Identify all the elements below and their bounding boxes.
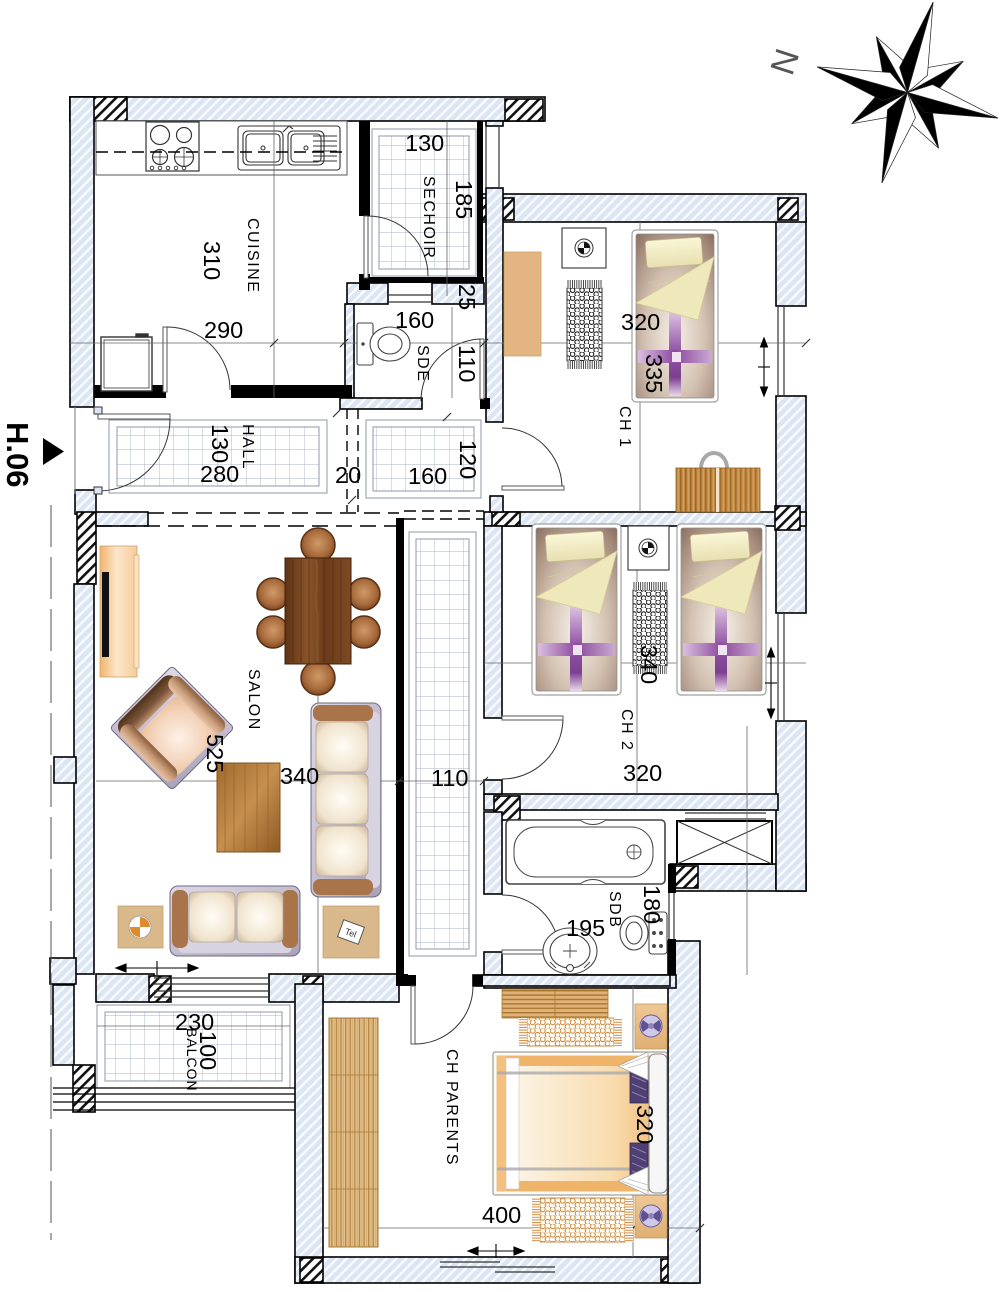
svg-text:160: 160 bbox=[395, 307, 434, 333]
svg-text:400: 400 bbox=[482, 1202, 521, 1228]
svg-text:340: 340 bbox=[280, 763, 319, 789]
svg-text:340: 340 bbox=[636, 645, 662, 684]
svg-text:130: 130 bbox=[405, 130, 444, 156]
svg-text:CH 1: CH 1 bbox=[616, 406, 633, 448]
svg-text:CH 2: CH 2 bbox=[618, 709, 635, 751]
svg-text:HALL: HALL bbox=[239, 424, 256, 470]
svg-text:320: 320 bbox=[623, 760, 662, 786]
svg-text:SDE: SDE bbox=[414, 345, 431, 382]
svg-text:195: 195 bbox=[566, 915, 605, 941]
svg-text:25: 25 bbox=[454, 284, 480, 310]
svg-text:CH PARENTS: CH PARENTS bbox=[443, 1049, 460, 1166]
svg-text:SDB: SDB bbox=[606, 891, 623, 928]
svg-text:320: 320 bbox=[621, 309, 660, 335]
svg-text:185: 185 bbox=[451, 180, 477, 219]
svg-text:290: 290 bbox=[204, 317, 243, 343]
svg-text:335: 335 bbox=[641, 354, 667, 393]
svg-text:120: 120 bbox=[455, 440, 481, 479]
svg-text:525: 525 bbox=[202, 734, 228, 773]
svg-text:160: 160 bbox=[408, 463, 447, 489]
svg-text:280: 280 bbox=[200, 461, 239, 487]
svg-text:SECHOIR: SECHOIR bbox=[420, 176, 437, 259]
svg-text:310: 310 bbox=[199, 241, 225, 280]
svg-text:110: 110 bbox=[431, 765, 468, 791]
svg-text:320: 320 bbox=[632, 1105, 658, 1144]
svg-text:110: 110 bbox=[454, 345, 480, 382]
svg-text:180: 180 bbox=[639, 885, 665, 924]
svg-text:CUISINE: CUISINE bbox=[244, 218, 261, 293]
svg-text:20: 20 bbox=[335, 462, 361, 488]
svg-text:100: 100 bbox=[195, 1031, 221, 1070]
svg-text:SALON: SALON bbox=[245, 669, 262, 731]
svg-text:130: 130 bbox=[207, 424, 233, 463]
svg-text:H.06: H.06 bbox=[0, 422, 35, 487]
